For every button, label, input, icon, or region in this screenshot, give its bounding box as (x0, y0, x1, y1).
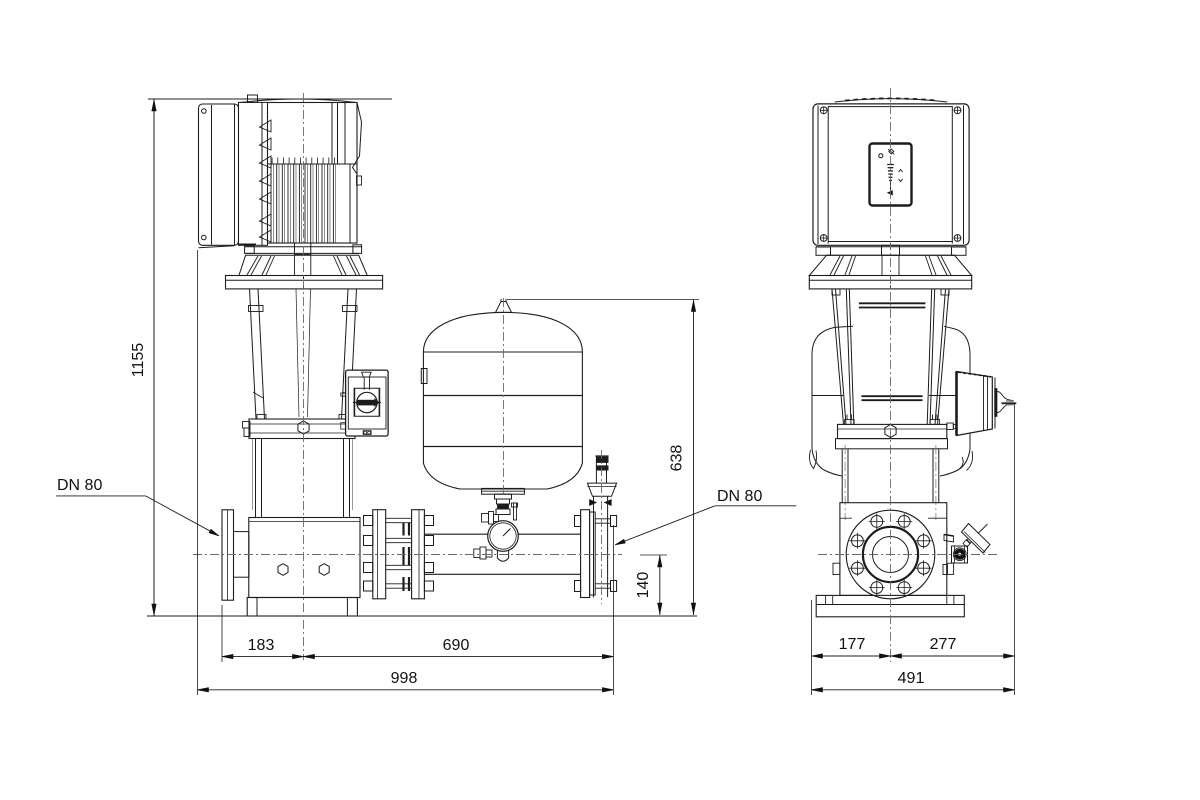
svg-text:638: 638 (669, 445, 686, 472)
svg-text:277: 277 (930, 636, 957, 653)
svg-text:998: 998 (391, 670, 418, 687)
svg-text:140: 140 (635, 572, 652, 599)
svg-text:177: 177 (839, 636, 866, 653)
svg-text:183: 183 (248, 637, 275, 654)
svg-text:DN 80: DN 80 (717, 488, 762, 505)
svg-text:1155: 1155 (130, 343, 147, 378)
svg-text:690: 690 (443, 637, 470, 654)
svg-text:DN 80: DN 80 (57, 477, 102, 494)
svg-text:491: 491 (898, 670, 925, 687)
